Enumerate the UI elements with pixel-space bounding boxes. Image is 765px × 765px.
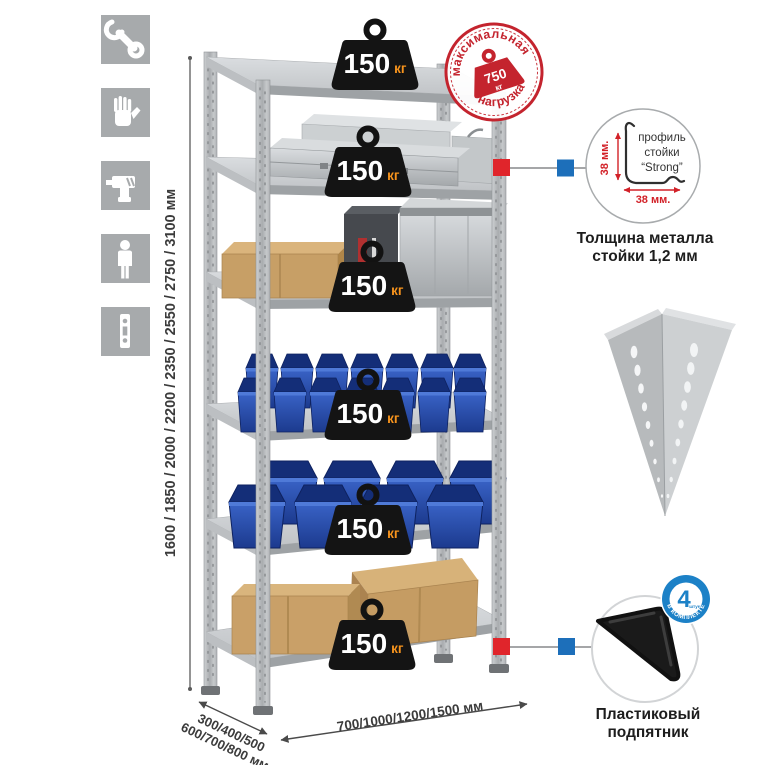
angle-post-image	[604, 308, 736, 516]
wrench-icon	[101, 15, 149, 63]
foot-caption-line2: подпятник	[607, 724, 688, 741]
sidebar-icon-person	[101, 234, 150, 283]
drill-icon	[101, 161, 149, 209]
thickness-caption-line2: стойки 1,2 мм	[592, 248, 697, 265]
svg-text:стойки: стойки	[644, 147, 679, 159]
foot-callout-connector	[493, 638, 593, 655]
load-weight: 150кг	[332, 22, 419, 91]
product-infographic: 150кг 150кг 150кг 150кг 150кг 150кг	[0, 0, 765, 765]
sidebar-icon-rack-post	[101, 307, 150, 356]
max-load-stamp: максимальная нагрузка 750 кг	[434, 12, 555, 133]
sidebar-icon-gloves	[101, 88, 150, 137]
person-icon	[101, 234, 149, 282]
profile-detail-circle: 38 мм. 38 мм. профиль стойки “Strong”	[586, 109, 700, 223]
height-dimension-line	[188, 56, 192, 691]
sidebar-icon-drill	[101, 161, 150, 210]
profile-horizontal-dim: 38 мм.	[636, 194, 671, 206]
gloves-icon	[101, 88, 149, 136]
svg-text:“Strong”: “Strong”	[641, 162, 683, 174]
profile-vertical-dim: 38 мм.	[599, 141, 611, 176]
svg-text:профиль: профиль	[638, 132, 686, 144]
height-dimension-label: 1600 / 1850 / 2000 / 2200 / 2350 / 2550 …	[163, 189, 179, 557]
thickness-caption-line1: Толщина металла	[577, 230, 714, 247]
sidebar-icon-wrench	[101, 15, 150, 64]
foot-caption-line1: Пластиковый	[596, 706, 701, 723]
weight-value: 150	[343, 48, 390, 79]
count-badge: 4 штуки В КОМПЛЕКТЕ	[661, 574, 712, 625]
profile-callout-connector	[493, 159, 586, 177]
weight-unit: кг	[394, 61, 407, 76]
rack-post-icon	[101, 307, 149, 355]
